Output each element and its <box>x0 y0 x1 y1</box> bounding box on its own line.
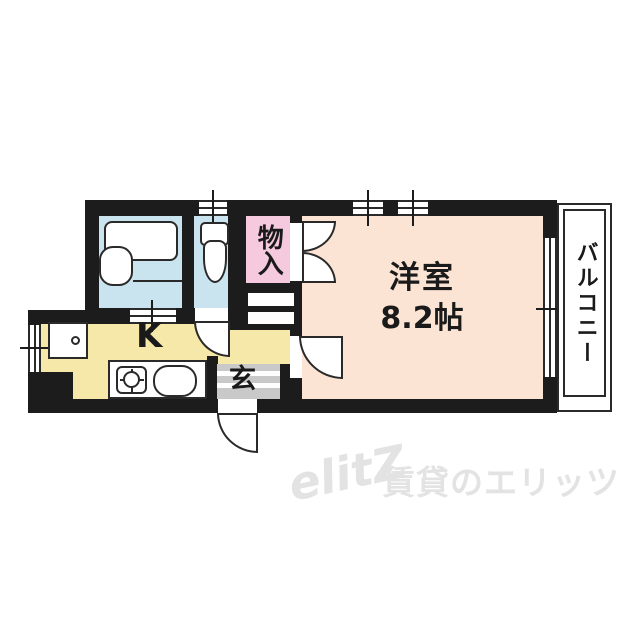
shoe-cabinet-lower <box>248 312 294 324</box>
floor-plan: 洋室 8.2帖 K 玄 物入 バルコニー elitZ 賃貸のエリッツ <box>0 0 640 640</box>
window-main-2-mullion <box>412 190 414 226</box>
closet-opening <box>290 223 302 281</box>
washer-pan-icon <box>48 322 88 359</box>
kitchen-label: K <box>136 318 162 355</box>
bath-platform-line <box>133 280 182 282</box>
main-room-label: 洋室 <box>352 261 492 295</box>
watermark: elitZ 賃貸のエリッツ <box>288 444 588 506</box>
washer-drain-icon <box>71 336 80 345</box>
wall-left-upper <box>85 200 99 324</box>
closet-label-text: 物入 <box>254 224 283 276</box>
balcony-label-text: バルコニー <box>572 241 596 366</box>
genkan-label-text: 玄 <box>229 364 256 395</box>
toilet-door-opening <box>195 308 228 322</box>
stove-icon <box>116 366 147 394</box>
balcony-label: バルコニー <box>563 212 606 395</box>
main-room-name: 洋室 <box>389 260 455 296</box>
closet-label: 物入 <box>249 219 287 281</box>
window-toilet-mullion <box>212 190 214 226</box>
wall-bottom <box>28 399 557 413</box>
shoe-cabinet-upper <box>248 293 294 306</box>
stove-burner-icon <box>123 371 140 388</box>
wall-kitchen-step <box>41 372 73 399</box>
kitchen-sink-icon <box>153 365 197 397</box>
main-room-size-text: 8.2帖 <box>380 301 463 336</box>
genkan-label: 玄 <box>229 365 256 395</box>
front-door <box>217 413 258 453</box>
wall-top <box>85 200 557 216</box>
kitchen-label-text: K <box>136 316 162 356</box>
watermark-text: 賃貸のエリッツ <box>382 456 620 504</box>
bath-sink-icon <box>99 246 133 286</box>
window-kitchen-left-mullion <box>20 347 50 349</box>
window-main-1-mullion <box>367 190 369 226</box>
main-room-size: 8.2帖 <box>352 302 492 335</box>
wall-bath-toilet-divider <box>182 216 194 310</box>
front-door-opening <box>218 399 257 413</box>
